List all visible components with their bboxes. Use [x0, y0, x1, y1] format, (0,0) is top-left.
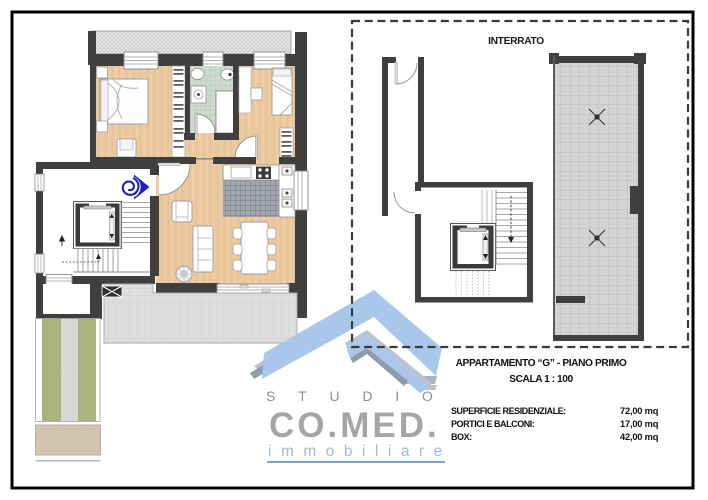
svg-text:INTERRATO: INTERRATO	[488, 36, 544, 47]
svg-text:17,00 mq: 17,00 mq	[620, 419, 659, 429]
svg-text:SCALA 1 : 100: SCALA 1 : 100	[509, 374, 573, 385]
svg-text:PORTICI E BALCONI:: PORTICI E BALCONI:	[451, 419, 535, 429]
svg-text:SUPERFICIE RESIDENZIALE:: SUPERFICIE RESIDENZIALE:	[451, 406, 566, 416]
svg-text:BOX:: BOX:	[451, 432, 472, 442]
svg-text:CO.MED.: CO.MED.	[269, 406, 440, 445]
svg-text:42,00 mq: 42,00 mq	[620, 432, 659, 442]
svg-text:APPARTAMENTO “G” - PIANO PRIMO: APPARTAMENTO “G” - PIANO PRIMO	[456, 358, 627, 369]
svg-text:72,00 mq: 72,00 mq	[620, 406, 659, 416]
svg-text:STUDIO: STUDIO	[266, 388, 456, 404]
svg-text:immobiliare: immobiliare	[268, 443, 452, 460]
